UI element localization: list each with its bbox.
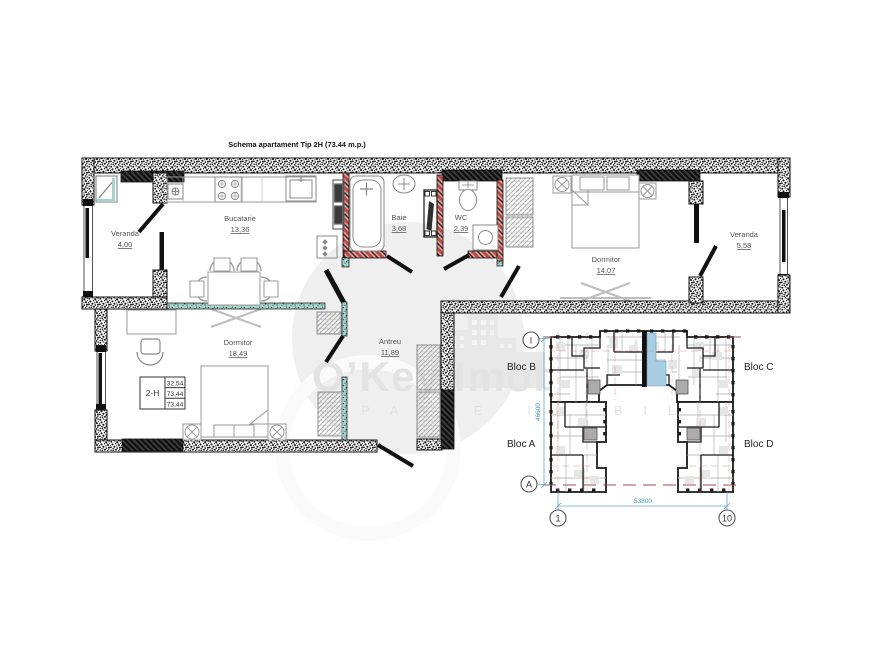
svg-text:46600: 46600 bbox=[535, 403, 542, 421]
svg-text:Bucatarie: Bucatarie bbox=[224, 214, 256, 223]
svg-text:13,36: 13,36 bbox=[231, 225, 250, 234]
svg-text:Veranda: Veranda bbox=[111, 229, 140, 238]
svg-text:Bloc C: Bloc C bbox=[744, 362, 773, 373]
svg-text:I: I bbox=[530, 336, 533, 346]
svg-text:18,49: 18,49 bbox=[229, 349, 248, 358]
svg-text:5,58: 5,58 bbox=[737, 241, 752, 250]
svg-text:3,68: 3,68 bbox=[392, 224, 407, 233]
svg-text:MPANIE IMOBILI: MPANIE IMOBILI bbox=[330, 404, 720, 418]
svg-text:32,54: 32,54 bbox=[167, 381, 184, 388]
svg-text:Bloc A: Bloc A bbox=[507, 439, 536, 450]
svg-text:Schema apartament Tip 2H (73.4: Schema apartament Tip 2H (73.44 m.p.) bbox=[228, 140, 366, 149]
svg-text:Bloc D: Bloc D bbox=[744, 439, 773, 450]
svg-text:Dormitor: Dormitor bbox=[224, 338, 253, 347]
svg-text:73,44: 73,44 bbox=[167, 391, 184, 398]
svg-text:53800: 53800 bbox=[634, 498, 652, 505]
svg-text:2,39: 2,39 bbox=[454, 224, 469, 233]
svg-text:1: 1 bbox=[555, 514, 560, 524]
svg-text:Baie: Baie bbox=[391, 213, 406, 222]
svg-text:Antreu: Antreu bbox=[379, 337, 401, 346]
svg-text:10: 10 bbox=[722, 514, 732, 524]
svg-text:Dormitor: Dormitor bbox=[592, 255, 621, 264]
svg-text:4,00: 4,00 bbox=[118, 240, 133, 249]
svg-text:WC: WC bbox=[455, 213, 468, 222]
svg-text:A: A bbox=[526, 480, 532, 490]
svg-text:14,07: 14,07 bbox=[597, 266, 616, 275]
svg-text:11,89: 11,89 bbox=[381, 348, 399, 357]
svg-text:73,44: 73,44 bbox=[167, 402, 184, 409]
svg-text:Bloc B: Bloc B bbox=[507, 362, 536, 373]
svg-text:2-H: 2-H bbox=[146, 388, 160, 398]
svg-text:Veranda: Veranda bbox=[730, 230, 759, 239]
